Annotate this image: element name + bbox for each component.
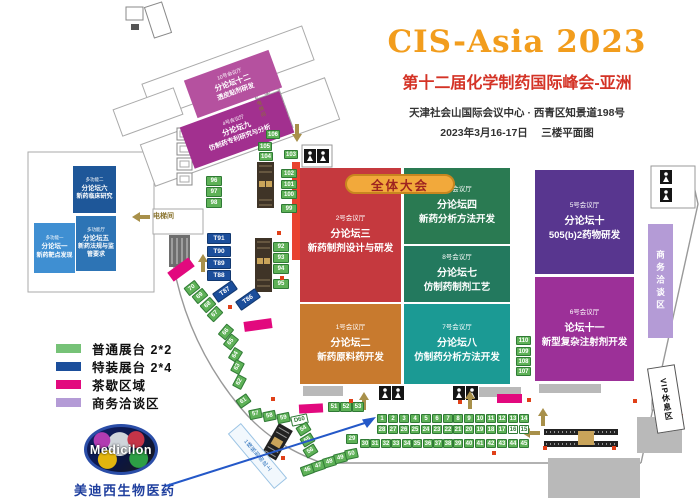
- booth-33: 33: [391, 439, 401, 448]
- tea-break-area: [299, 403, 323, 413]
- booth-20: 20: [464, 425, 474, 434]
- date-line: 2023年3月16-17日 三楼平面图: [352, 125, 682, 140]
- tea-break-area: [167, 257, 195, 281]
- legend-label: 特装展台 2*4: [92, 357, 172, 376]
- booth-26: 26: [399, 425, 409, 434]
- booth-37: 37: [433, 439, 443, 448]
- booth-32: 32: [381, 439, 391, 448]
- legend-row: 茶歇区域: [56, 375, 172, 393]
- tea-break-area: [497, 394, 522, 403]
- booth-18: 18: [486, 425, 496, 434]
- hall-room-label: 6号会议厅: [570, 309, 600, 317]
- hall-forum-label: 分论坛二: [331, 337, 371, 350]
- booth-52: 52: [340, 402, 352, 412]
- hall-topic-label: 新药分析方法开发: [416, 214, 498, 226]
- hall-6: 5号会议厅分论坛十505(b)2药物研发: [535, 170, 634, 274]
- booth-22: 22: [443, 425, 453, 434]
- hall-forum-label: 分论坛七: [437, 267, 477, 280]
- booth-25: 25: [410, 425, 420, 434]
- hall-forum-label: 分论坛三: [331, 228, 371, 241]
- booth-T90: T90: [207, 246, 231, 257]
- booth-4: 4: [410, 414, 420, 423]
- booth-100: 100: [281, 190, 297, 199]
- booth-35: 35: [412, 439, 422, 448]
- booth-103: 103: [284, 150, 298, 159]
- hall-topic-label: 新药靶点发现: [34, 253, 74, 261]
- fire-point-marker: [271, 397, 275, 401]
- hall-10: 多功能一分论坛一新药靶点发现: [34, 223, 75, 273]
- hall-topic-label: 新型复杂注射剂开发: [539, 337, 631, 349]
- hall-7: 6号会议厅论坛十一新型复杂注射剂开发: [535, 277, 634, 381]
- booth-17: 17: [497, 425, 507, 434]
- hall-topic-label: 505(b)2药物研发: [546, 230, 623, 242]
- booth-57: 57: [248, 408, 263, 420]
- booth-40: 40: [464, 439, 474, 448]
- hall-topic-label: 新药临床研究: [74, 194, 114, 202]
- booth-14: 14: [519, 414, 529, 423]
- booth-101: 101: [281, 180, 297, 189]
- legend-swatch-tea-break: [56, 380, 81, 389]
- service-block: [303, 386, 343, 396]
- booth-108: 108: [516, 357, 531, 366]
- booth-12: 12: [497, 414, 507, 423]
- hall-5: 7号会议厅分论坛八仿制药分析方法开发: [404, 304, 510, 384]
- booth-8: 8: [453, 414, 463, 423]
- fire-point-marker: [458, 400, 462, 404]
- event-logo: CIS-Asia 2023: [352, 24, 682, 60]
- booth-58: 58: [262, 410, 277, 422]
- booth-13: 13: [508, 414, 518, 423]
- booth-95: 95: [273, 279, 289, 289]
- service-block: [548, 458, 640, 498]
- fire-point-marker: [527, 398, 531, 402]
- legend-row: 特装展台 2*4: [56, 357, 172, 375]
- booth-42: 42: [486, 439, 496, 448]
- booth-23: 23: [432, 425, 442, 434]
- legend-row: 普通展台 2*2: [56, 339, 172, 357]
- booth-110: 110: [516, 336, 531, 345]
- hall-2: 1号会议厅分论坛二新药原料药开发: [300, 304, 401, 384]
- booth-94: 94: [273, 264, 289, 274]
- booth-109: 109: [516, 347, 531, 356]
- hall-forum-label: 分论坛八: [437, 337, 477, 350]
- legend: 普通展台 2*2 特装展台 2*4 茶歇区域 商务洽谈区: [56, 339, 172, 411]
- booth-45: 45: [519, 439, 529, 448]
- hall-forum-label: 分论坛四: [437, 199, 477, 212]
- booth-1: 1: [377, 414, 387, 423]
- elevator-label: 电梯间: [153, 211, 174, 221]
- hall-room-label: 多功能一: [46, 235, 64, 241]
- booth-102: 102: [281, 169, 297, 178]
- booth-34: 34: [402, 439, 412, 448]
- booth-31: 31: [370, 439, 380, 448]
- booth-98: 98: [206, 198, 222, 208]
- hall-topic-label: 新药制剂设计与研发: [305, 243, 397, 255]
- booth-39: 39: [453, 439, 463, 448]
- hall-forum-label: 分论坛六: [82, 185, 108, 193]
- booth-61: 61: [235, 393, 251, 409]
- booth-96: 96: [206, 176, 222, 186]
- hall-topic-label: 新药原料药开发: [314, 352, 387, 364]
- hall-room-label: 7号会议厅: [442, 324, 472, 332]
- booth-59: 59: [276, 412, 291, 424]
- tea-break-area: [243, 318, 272, 332]
- hall-topic-label: 新药法规与监管要求: [76, 244, 116, 260]
- booth-21: 21: [453, 425, 463, 434]
- hall-4: 8号会议厅分论坛七仿制药制剂工艺: [404, 246, 510, 302]
- booth-T91: T91: [207, 233, 231, 244]
- hall-topic-label: 仿制药分析方法开发: [411, 352, 503, 364]
- booth-53: 53: [352, 402, 364, 412]
- hall-room-label: 多功能厅: [87, 227, 105, 233]
- booth-5: 5: [421, 414, 431, 423]
- booth-T86: T86: [235, 288, 261, 311]
- fire-point-marker: [277, 231, 281, 235]
- booth-3: 3: [399, 414, 409, 423]
- hall-room-label: 5号会议厅: [570, 202, 600, 210]
- hall-forum-label: 分论坛十: [565, 215, 605, 228]
- hall-forum-label: 分论坛一: [42, 243, 68, 251]
- booth-15: 15: [519, 425, 529, 434]
- legend-swatch-standard-booth: [56, 344, 81, 353]
- fire-point-marker: [228, 305, 232, 309]
- event-subtitle: 第十二届化学制药国际峰会-亚洲: [352, 69, 682, 93]
- booth-9: 9: [464, 414, 474, 423]
- hall-8: 多功能二分论坛六新药临床研究: [73, 166, 116, 213]
- hall-forum-label: 论坛十一: [565, 322, 605, 335]
- fire-point-marker: [281, 456, 285, 460]
- fire-point-marker: [543, 446, 547, 450]
- booth-6: 6: [432, 414, 442, 423]
- booth-29: 29: [346, 434, 358, 444]
- floorplan: 2号会议厅分论坛三新药制剂设计与研发1号会议厅分论坛二新药原料药开发3号会议厅分…: [0, 0, 700, 498]
- booth-T88: T88: [207, 270, 231, 281]
- booth-30: 30: [360, 439, 370, 448]
- hall-room-label: 1号会议厅: [336, 324, 366, 332]
- booth-19: 19: [475, 425, 485, 434]
- business-negotiation-area: 商务洽谈区: [648, 224, 673, 338]
- booth-44: 44: [508, 439, 518, 448]
- sponsor-name: Medicilon: [90, 443, 152, 457]
- booth-104: 104: [259, 152, 273, 161]
- legend-label: 普通展台 2*2: [92, 339, 172, 358]
- fire-point-marker: [492, 451, 496, 455]
- sponsor-logo: Medicilon: [84, 424, 158, 475]
- booth-10: 10: [475, 414, 485, 423]
- booth-50: 50: [344, 448, 359, 460]
- booth-41: 41: [475, 439, 485, 448]
- hall-room-label: 2号会议厅: [336, 215, 366, 223]
- hall-topic-label: 仿制药制剂工艺: [421, 282, 494, 294]
- plenary-banner: 全体大会: [345, 174, 455, 194]
- fire-point-marker: [633, 399, 637, 403]
- booth-T89: T89: [207, 258, 231, 269]
- booth-11: 11: [486, 414, 496, 423]
- booth-97: 97: [206, 187, 222, 197]
- sponsor-cn-name: 美迪西生物医药: [74, 480, 176, 498]
- fire-point-marker: [280, 276, 284, 280]
- booth-27: 27: [388, 425, 398, 434]
- booth-24: 24: [421, 425, 431, 434]
- booth-106: 106: [266, 130, 280, 139]
- hall-forum-label: 分论坛五: [83, 235, 109, 243]
- booth-93: 93: [273, 253, 289, 263]
- hall-room-label: 8号会议厅: [442, 254, 472, 262]
- booth-43: 43: [497, 439, 507, 448]
- legend-row: 商务洽谈区: [56, 393, 172, 411]
- service-block: [539, 384, 601, 393]
- booth-105: 105: [258, 142, 272, 151]
- venue-line: 天津社会山国际会议中心 · 西青区知景道198号: [352, 105, 682, 120]
- legend-label: 商务洽谈区: [92, 393, 160, 412]
- booth-63: 63: [230, 359, 245, 375]
- title-block: CIS-Asia 2023 第十二届化学制药国际峰会-亚洲 天津社会山国际会议中…: [352, 24, 682, 140]
- booth-99: 99: [281, 204, 297, 213]
- fire-point-marker: [612, 446, 616, 450]
- booth-38: 38: [443, 439, 453, 448]
- booth-107: 107: [516, 367, 531, 376]
- booth-T87: T87: [212, 280, 238, 303]
- hall-9: 多功能厅分论坛五新药法规与监管要求: [76, 216, 116, 271]
- booth-51: 51: [328, 402, 340, 412]
- legend-swatch-business: [56, 398, 81, 407]
- booth-16: 16: [508, 425, 518, 434]
- booth-28: 28: [377, 425, 387, 434]
- booth-7: 7: [443, 414, 453, 423]
- booth-2: 2: [388, 414, 398, 423]
- booth-62: 62: [232, 374, 247, 390]
- hall-room-label: 多功能二: [86, 177, 104, 183]
- fire-point-marker: [349, 399, 353, 403]
- booth-36: 36: [423, 439, 433, 448]
- legend-swatch-special-booth: [56, 362, 81, 371]
- legend-label: 茶歇区域: [92, 375, 146, 394]
- booth-92: 92: [273, 242, 289, 252]
